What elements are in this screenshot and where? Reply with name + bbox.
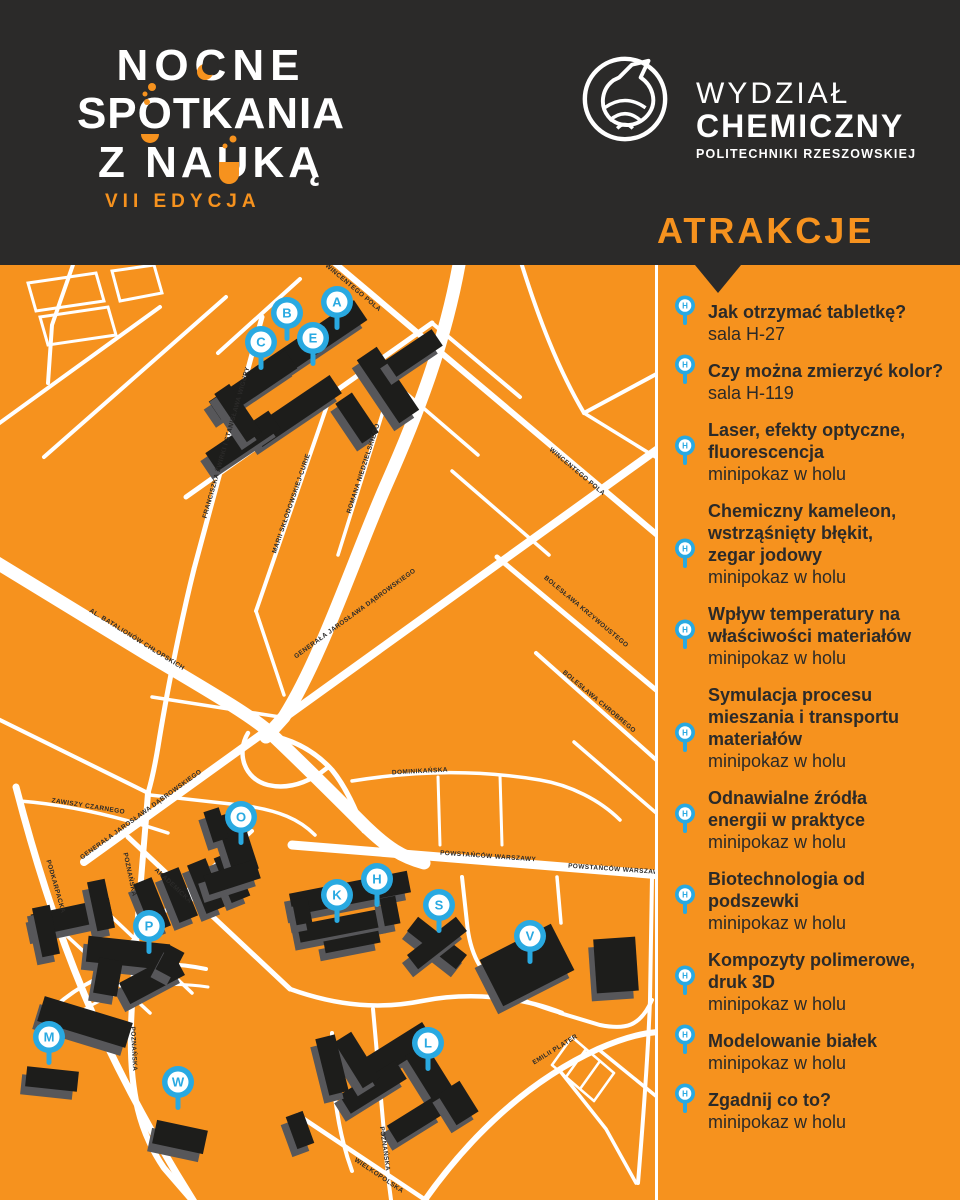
attraction-title: Symulacja procesu mieszania i transportu…: [708, 684, 952, 750]
attraction-title: Biotechnologia od podszewki: [708, 868, 952, 912]
pin-letter: H: [682, 442, 688, 451]
faculty-flask-icon: [578, 52, 672, 146]
attraction-location: sala H-119: [708, 382, 952, 404]
attraction-title: Odnawialne źródła energii w praktyce: [708, 787, 952, 831]
location-pin-icon: H: [672, 964, 698, 997]
attraction-item: H Laser, efekty optyczne, fluorescencja …: [672, 419, 952, 485]
attraction-title: Wpływ temperatury na właściwości materia…: [708, 603, 952, 647]
event-title-line-2: SPOTKANIA: [73, 90, 349, 138]
pin-letter: H: [682, 810, 688, 819]
main-area: WINCENTEGO POLAWINCENTEGO POLAFRANCISZKA…: [0, 265, 960, 1200]
map-marker-letter: W: [172, 1075, 185, 1090]
attraction-item: H Zgadnij co to? minipokaz w holu: [672, 1089, 952, 1133]
faculty-logo: WYDZIAŁ CHEMICZNY POLITECHNIKI RZESZOWSK…: [578, 52, 916, 161]
attraction-title: Chemiczny kameleon, wstrząśnięty błękit,…: [708, 500, 952, 566]
attraction-item: H Modelowanie białek minipokaz w holu: [672, 1030, 952, 1074]
pin-letter: H: [682, 1090, 688, 1099]
pin-letter: H: [682, 729, 688, 738]
attraction-location: minipokaz w holu: [708, 831, 952, 853]
attraction-item: H Biotechnologia od podszewki minipokaz …: [672, 868, 952, 934]
attraction-location: sala H-27: [708, 323, 952, 345]
attraction-title: Jak otrzymać tabletkę?: [708, 301, 952, 323]
map-marker-letter: K: [332, 888, 342, 903]
attraction-item: H Kompozyty polimerowe, druk 3D minipoka…: [672, 949, 952, 1015]
attraction-title: Modelowanie białek: [708, 1030, 952, 1052]
attraction-location: minipokaz w holu: [708, 750, 952, 772]
location-pin-icon: H: [672, 434, 698, 467]
attraction-location: minipokaz w holu: [708, 912, 952, 934]
location-pin-icon: H: [672, 1082, 698, 1115]
faculty-name-line-2: CHEMICZNY: [696, 110, 916, 144]
attraction-location: minipokaz w holu: [708, 993, 952, 1015]
pin-letter: H: [682, 1031, 688, 1040]
building: [593, 937, 639, 994]
pin-letter: H: [682, 891, 688, 900]
attraction-title: Czy można zmierzyć kolor?: [708, 360, 952, 382]
header-pointer-triangle: [695, 265, 741, 293]
map-svg: WINCENTEGO POLAWINCENTEGO POLAFRANCISZKA…: [0, 265, 655, 1200]
attractions-heading: ATRAKCJE: [657, 210, 874, 252]
faculty-name-line-1: WYDZIAŁ: [696, 78, 916, 110]
attraction-location: minipokaz w holu: [708, 463, 952, 485]
attraction-title: Zgadnij co to?: [708, 1089, 952, 1111]
faculty-name: WYDZIAŁ CHEMICZNY POLITECHNIKI RZESZOWSK…: [696, 78, 916, 161]
sidebar: H Jak otrzymać tabletkę? sala H-27 H Czy…: [658, 265, 960, 1200]
map-marker-letter: S: [435, 898, 444, 913]
attraction-item: H Symulacja procesu mieszania i transpor…: [672, 684, 952, 772]
location-pin-icon: H: [672, 537, 698, 570]
attraction-title: Laser, efekty optyczne, fluorescencja: [708, 419, 952, 463]
pin-letter: H: [682, 302, 688, 311]
attraction-location: minipokaz w holu: [708, 1111, 952, 1133]
attraction-item: H Wpływ temperatury na właściwości mater…: [672, 603, 952, 669]
location-pin-icon: H: [672, 802, 698, 835]
event-logo: NOCNE SPOTKANIA Z NAUKĄ VII EDYCJA: [73, 42, 349, 213]
map-marker-letter: A: [332, 295, 342, 310]
event-title-line-1: NOCNE: [73, 42, 349, 90]
faculty-name-line-3: POLITECHNIKI RZESZOWSKIEJ: [696, 148, 916, 161]
location-pin-icon: H: [672, 883, 698, 916]
edition-label: VII EDYCJA: [105, 191, 349, 213]
pin-letter: H: [682, 626, 688, 635]
location-pin-icon: H: [672, 1023, 698, 1056]
pin-letter: H: [682, 361, 688, 370]
map-marker-letter: H: [372, 872, 381, 887]
map-marker-letter: V: [526, 929, 535, 944]
poster-root: NOCNE SPOTKANIA Z NAUKĄ VII EDYCJA: [0, 0, 960, 1200]
attraction-location: minipokaz w holu: [708, 566, 952, 588]
map-marker-letter: M: [44, 1030, 55, 1045]
map-marker-letter: B: [282, 306, 291, 321]
attraction-item: H Odnawialne źródła energii w praktyce m…: [672, 787, 952, 853]
location-pin-icon: H: [672, 353, 698, 386]
header: NOCNE SPOTKANIA Z NAUKĄ VII EDYCJA: [0, 0, 960, 265]
map-marker-letter: O: [236, 810, 246, 825]
map-marker-letter: L: [424, 1036, 432, 1051]
attraction-location: minipokaz w holu: [708, 1052, 952, 1074]
map-marker-letter: C: [256, 335, 266, 350]
attraction-location: minipokaz w holu: [708, 647, 952, 669]
attraction-item: H Jak otrzymać tabletkę? sala H-27: [672, 301, 952, 345]
map-marker-letter: E: [309, 331, 318, 346]
campus-map: WINCENTEGO POLAWINCENTEGO POLAFRANCISZKA…: [0, 265, 655, 1200]
attraction-item: H Czy można zmierzyć kolor? sala H-119: [672, 360, 952, 404]
attractions-list: H Jak otrzymać tabletkę? sala H-27 H Czy…: [672, 301, 952, 1133]
pin-letter: H: [682, 972, 688, 981]
attraction-item: H Chemiczny kameleon, wstrząśnięty błęki…: [672, 500, 952, 588]
location-pin-icon: H: [672, 294, 698, 327]
map-marker-letter: P: [145, 919, 154, 934]
attraction-title: Kompozyty polimerowe, druk 3D: [708, 949, 952, 993]
pin-letter: H: [682, 545, 688, 554]
event-title-line-3: Z NAUKĄ: [73, 139, 349, 187]
location-pin-icon: H: [672, 618, 698, 651]
location-pin-icon: H: [672, 721, 698, 754]
